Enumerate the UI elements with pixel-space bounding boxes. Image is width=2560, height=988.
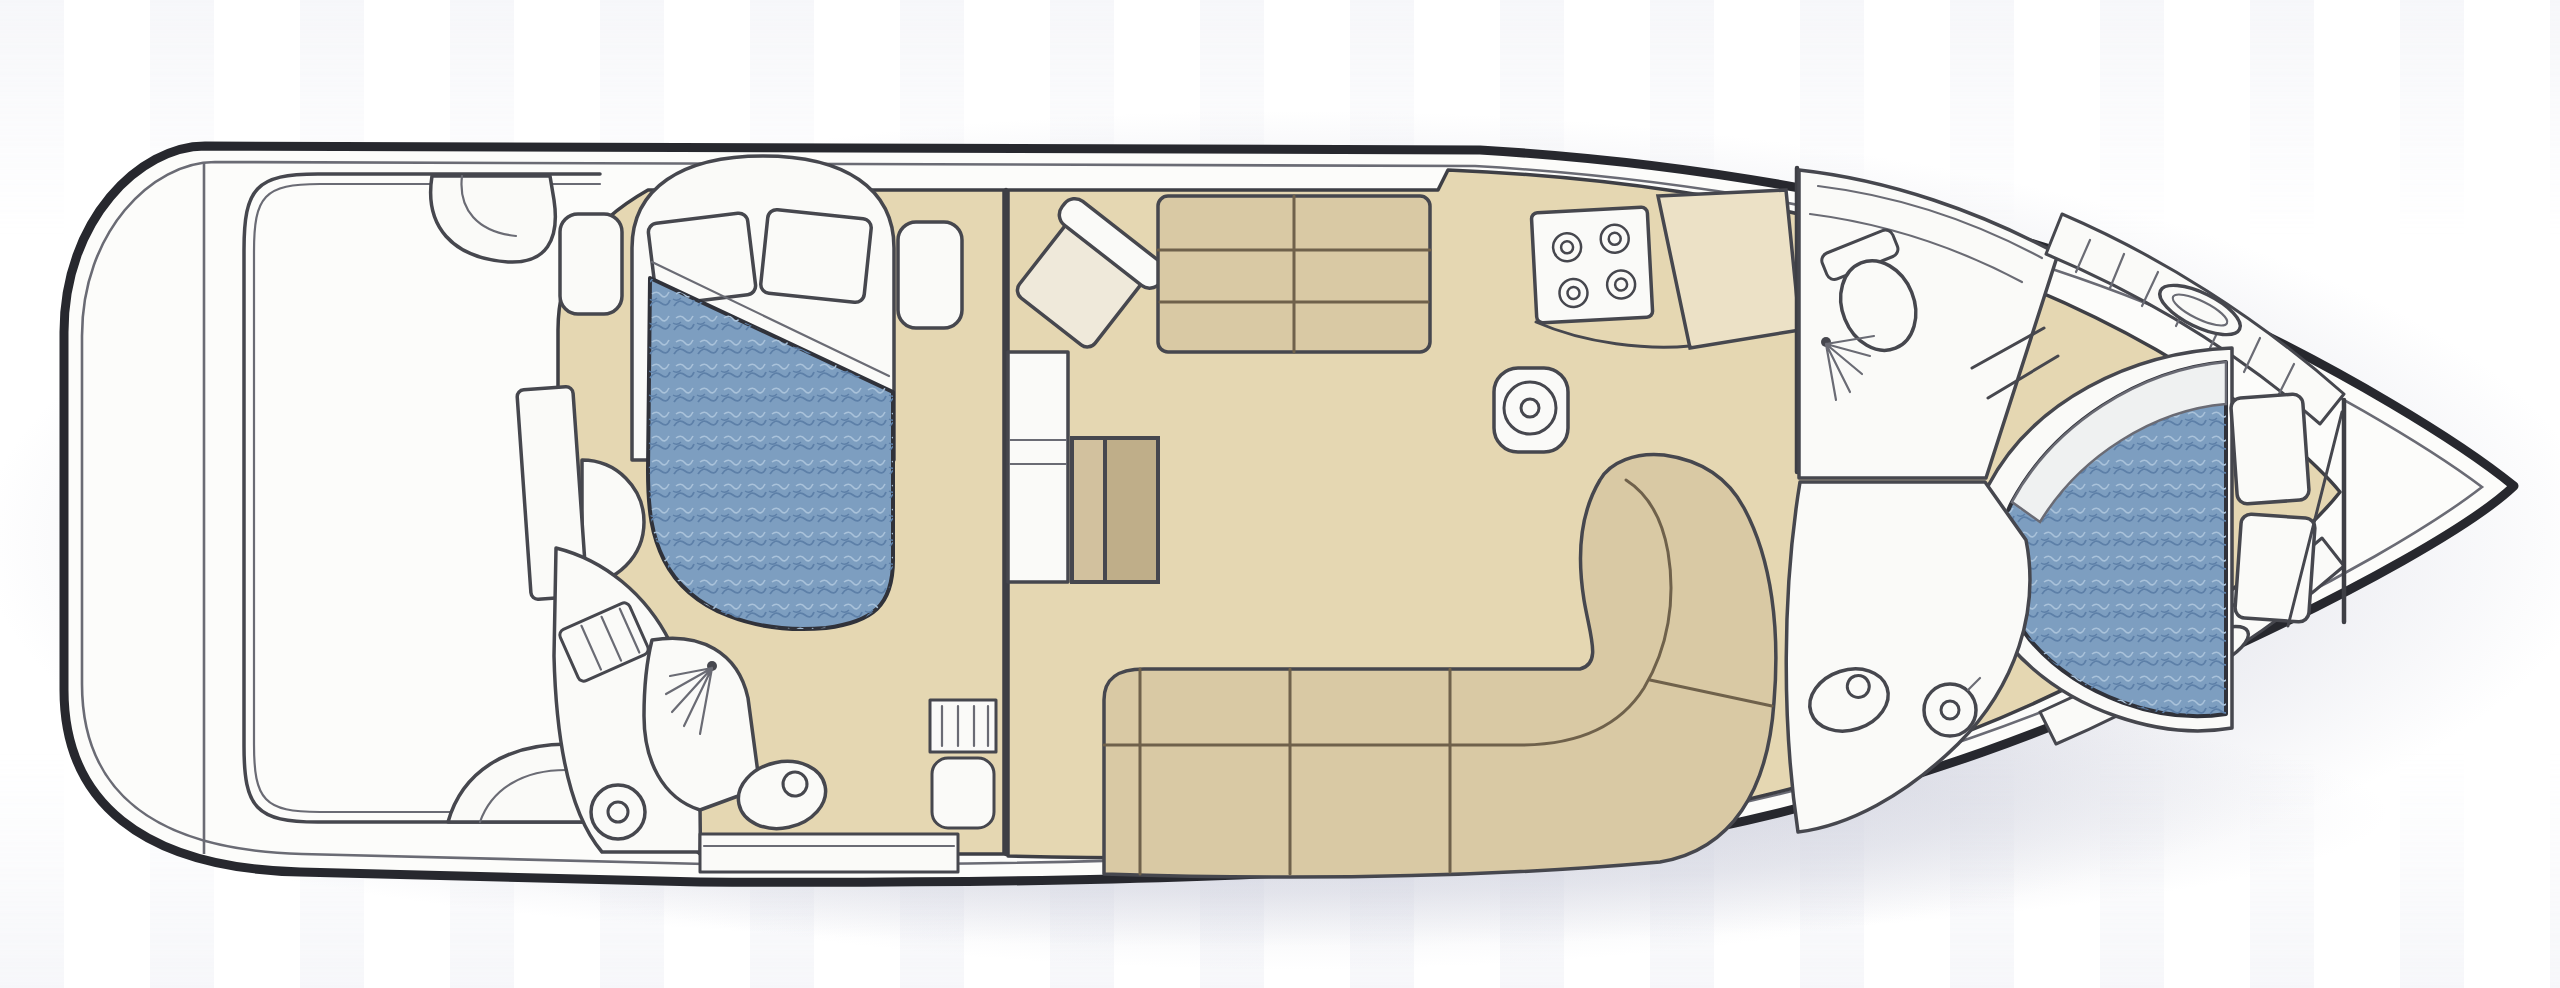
vanity-counter [700, 834, 958, 872]
cooktop-panel [1531, 207, 1653, 323]
pillow [760, 209, 872, 303]
sink-drain [608, 802, 628, 822]
pillow [2230, 394, 2309, 505]
vanity-basin [932, 758, 994, 828]
faucet-panel [930, 700, 996, 752]
sink-drain [1941, 701, 1959, 719]
yacht-floor-plan [0, 0, 2560, 988]
sink-drain [1521, 399, 1539, 417]
salon-entry-steps [1008, 352, 1068, 582]
cabinet-table [1072, 438, 1158, 582]
nightstand-starboard [898, 222, 962, 328]
four-burner-cooktop [1531, 207, 1653, 323]
nightstand-port [560, 214, 622, 314]
yacht-floor-plan-canvas [0, 0, 2560, 988]
loveseat-sofa [1158, 196, 1430, 352]
table-right-leaf [1105, 438, 1158, 582]
